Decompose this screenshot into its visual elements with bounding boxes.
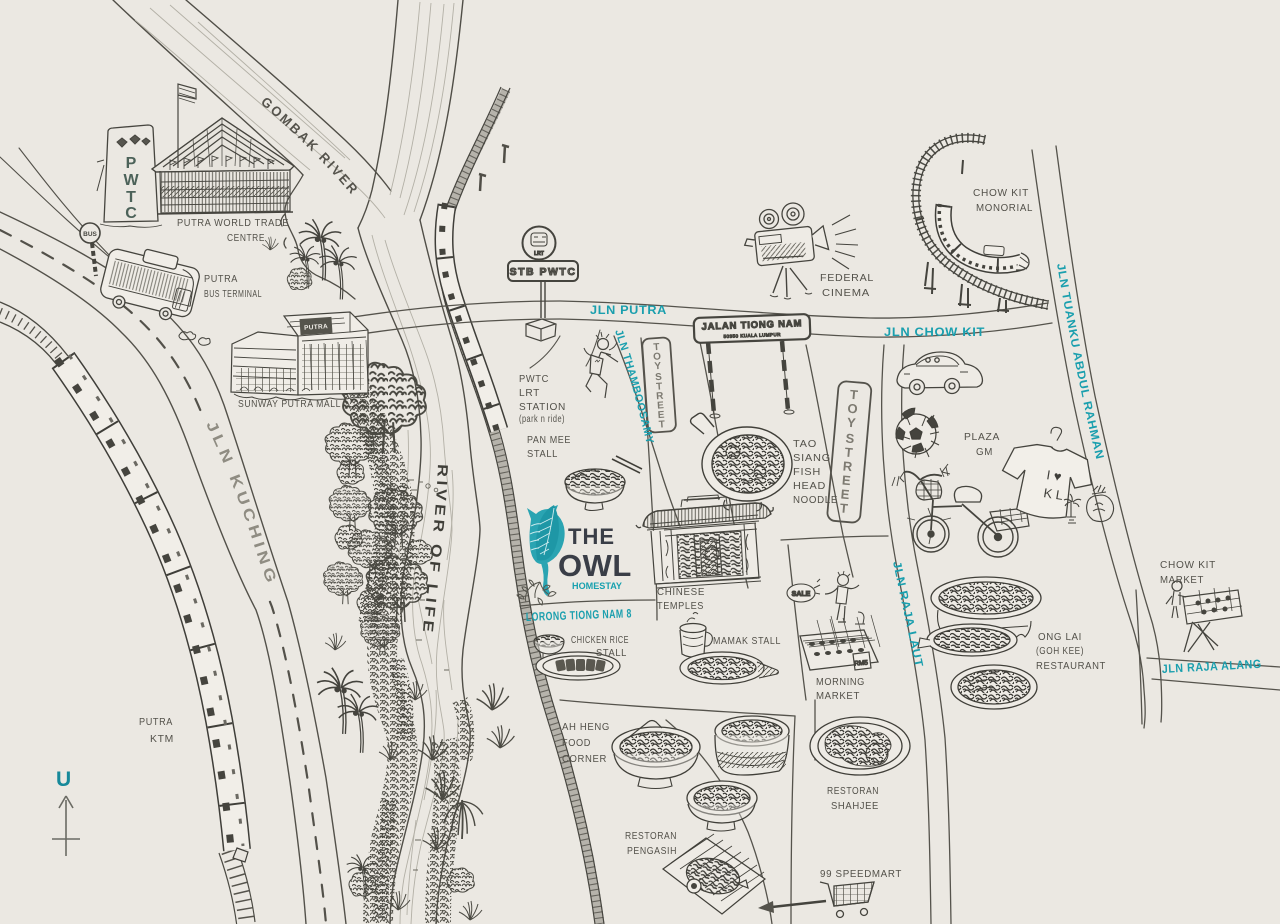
svg-text:SUNWAY PUTRA MALL: SUNWAY PUTRA MALL: [238, 398, 341, 410]
svg-text:OWL: OWL: [558, 548, 632, 583]
svg-text:RM5: RM5: [854, 659, 869, 667]
svg-text:RESTAURANT: RESTAURANT: [1036, 660, 1106, 672]
svg-text:K L: K L: [1043, 485, 1065, 503]
svg-text:SALE: SALE: [792, 591, 811, 598]
svg-text:MONORIAL: MONORIAL: [976, 202, 1033, 214]
svg-text:P: P: [126, 155, 137, 172]
svg-text:C: C: [125, 205, 137, 222]
svg-text:RESTORAN: RESTORAN: [827, 785, 879, 797]
svg-text:STALL: STALL: [527, 448, 558, 460]
svg-text:STALL: STALL: [596, 647, 627, 659]
svg-text:I ♥: I ♥: [1046, 467, 1063, 484]
svg-text:ONG LAI: ONG LAI: [1038, 631, 1082, 643]
svg-text:JLN CHOW KIT: JLN CHOW KIT: [884, 325, 985, 339]
svg-text:MORNING: MORNING: [816, 676, 865, 688]
svg-text:HOMESTAY: HOMESTAY: [572, 581, 623, 592]
svg-text:LRT: LRT: [534, 251, 544, 257]
svg-text:STB PWTC: STB PWTC: [510, 266, 577, 278]
svg-text:TEMPLES: TEMPLES: [657, 600, 704, 612]
svg-text:PLAZA: PLAZA: [964, 431, 1000, 443]
svg-text:AH HENG: AH HENG: [562, 721, 610, 733]
svg-text:LRT: LRT: [519, 387, 540, 399]
svg-text:MAMAK STALL: MAMAK STALL: [713, 635, 781, 647]
svg-text:CHOW KIT: CHOW KIT: [973, 187, 1029, 199]
svg-text:CORNER: CORNER: [562, 753, 607, 765]
svg-text:THE: THE: [568, 524, 615, 549]
svg-text:NOODLE: NOODLE: [793, 494, 838, 506]
svg-text:TAO: TAO: [793, 438, 817, 450]
svg-text:FISH: FISH: [793, 466, 821, 478]
svg-text:SIANG: SIANG: [793, 452, 831, 464]
svg-text:KTM: KTM: [150, 733, 174, 745]
svg-text:PUTRA: PUTRA: [204, 273, 238, 285]
svg-text:SHAHJEE: SHAHJEE: [831, 800, 879, 812]
svg-text:GM: GM: [976, 446, 993, 458]
svg-text:MARKET: MARKET: [1160, 574, 1204, 586]
svg-text:CHINESE: CHINESE: [657, 586, 705, 598]
svg-text:FOOD: FOOD: [562, 737, 591, 749]
svg-text:PUTRA: PUTRA: [139, 716, 173, 728]
svg-text:T: T: [126, 189, 136, 206]
svg-text:PUTRA WORLD TRADE: PUTRA WORLD TRADE: [177, 217, 289, 229]
svg-text:PWTC: PWTC: [519, 373, 549, 385]
svg-text:STATION: STATION: [519, 401, 566, 413]
svg-text:FEDERAL: FEDERAL: [820, 272, 874, 284]
svg-text:PENGASIH: PENGASIH: [627, 845, 677, 857]
svg-text:(GOH KEE): (GOH KEE): [1036, 645, 1084, 657]
svg-text:BUS TERMINAL: BUS TERMINAL: [204, 288, 262, 300]
svg-text:U: U: [56, 768, 71, 791]
svg-text:JLN PUTRA: JLN PUTRA: [590, 303, 667, 317]
svg-text:99 SPEEDMART: 99 SPEEDMART: [820, 868, 902, 880]
svg-text:CHICKEN RICE: CHICKEN RICE: [571, 634, 629, 646]
svg-text:CINEMA: CINEMA: [822, 287, 870, 299]
svg-text:RESTORAN: RESTORAN: [625, 830, 677, 842]
svg-text:MARKET: MARKET: [816, 690, 860, 702]
svg-text:BUS: BUS: [83, 231, 97, 238]
svg-text:CHOW KIT: CHOW KIT: [1160, 559, 1216, 571]
svg-text:CENTRE: CENTRE: [227, 232, 265, 244]
svg-text:HEAD: HEAD: [793, 480, 826, 492]
svg-text:W: W: [123, 172, 139, 189]
svg-text:PAN MEE: PAN MEE: [527, 434, 571, 446]
svg-text:(park n ride): (park n ride): [519, 413, 565, 425]
